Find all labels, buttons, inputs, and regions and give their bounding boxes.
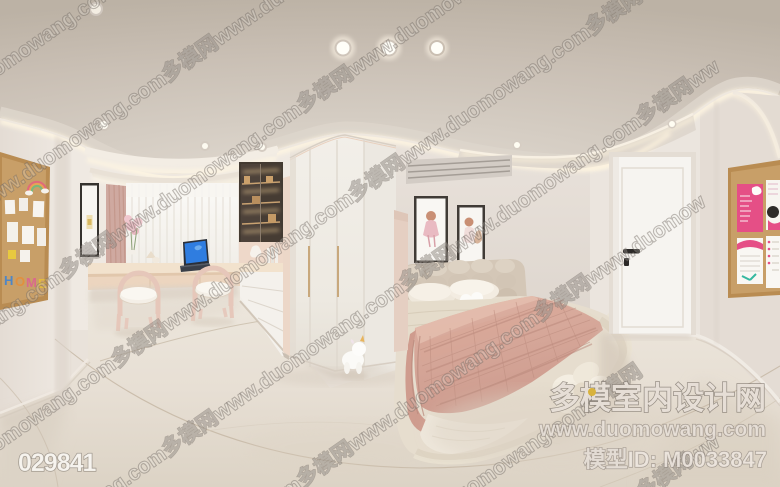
svg-text:H: H	[4, 273, 13, 288]
svg-text:029841: 029841	[18, 449, 97, 477]
svg-text:多模室内设计网: 多模室内设计网	[549, 381, 766, 416]
svg-text:模型ID: M0033847: 模型ID: M0033847	[584, 447, 767, 472]
svg-text:www.duomowang.com: www.duomowang.com	[538, 418, 766, 441]
